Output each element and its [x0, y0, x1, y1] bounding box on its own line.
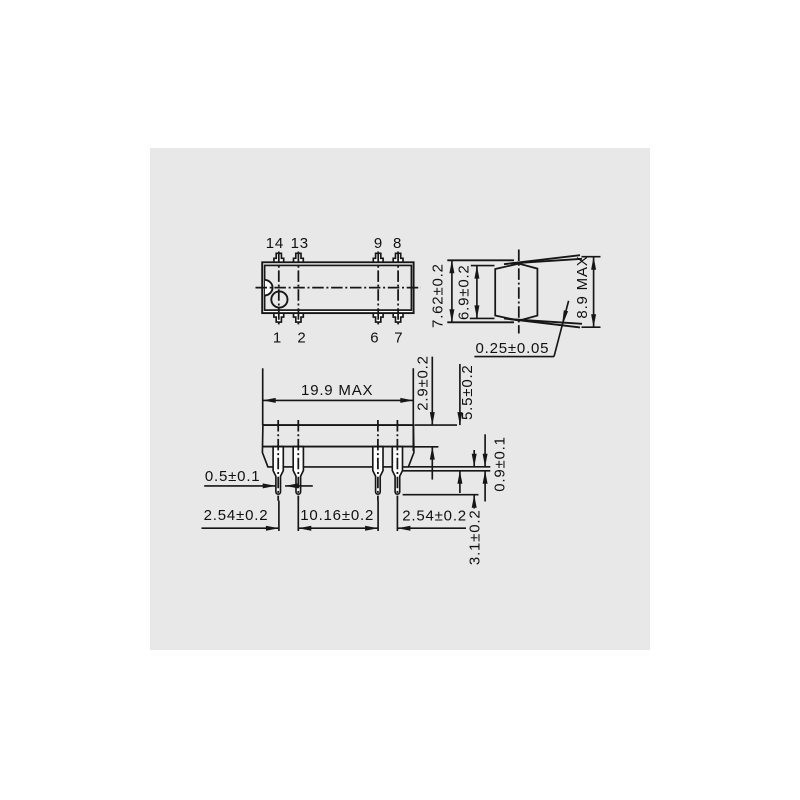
svg-text:8: 8 — [393, 235, 402, 252]
svg-text:8.9 MAX: 8.9 MAX — [574, 255, 591, 318]
svg-text:2.54±0.2: 2.54±0.2 — [204, 507, 269, 524]
svg-text:10.16±0.2: 10.16±0.2 — [300, 507, 374, 524]
svg-text:6.9±0.2: 6.9±0.2 — [455, 264, 472, 320]
svg-text:2.54±0.2: 2.54±0.2 — [402, 507, 467, 524]
svg-text:14: 14 — [266, 235, 284, 252]
svg-text:2: 2 — [297, 330, 306, 347]
svg-text:7.62±0.2: 7.62±0.2 — [429, 263, 446, 328]
svg-text:7: 7 — [394, 330, 403, 347]
svg-text:0.25±0.05: 0.25±0.05 — [476, 340, 550, 357]
svg-text:0.9±0.1: 0.9±0.1 — [492, 436, 509, 492]
svg-text:13: 13 — [291, 235, 309, 252]
svg-text:1: 1 — [273, 330, 282, 347]
svg-text:6: 6 — [370, 330, 379, 347]
svg-text:0.5±0.1: 0.5±0.1 — [205, 468, 261, 485]
svg-text:9: 9 — [374, 235, 383, 252]
svg-text:19.9 MAX: 19.9 MAX — [301, 382, 373, 399]
svg-text:3.1±0.2: 3.1±0.2 — [466, 510, 483, 566]
svg-text:2.9±0.2: 2.9±0.2 — [414, 355, 431, 411]
svg-text:5.5±0.2: 5.5±0.2 — [459, 364, 476, 420]
